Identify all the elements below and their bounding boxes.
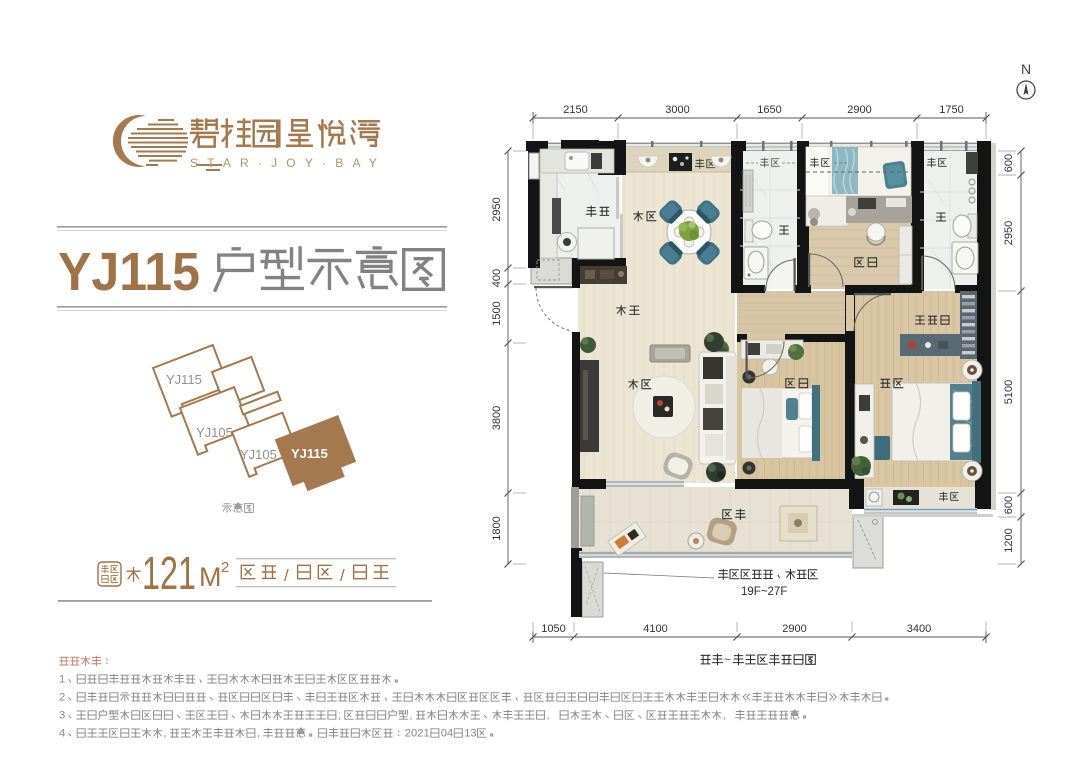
svg-text:/: / [284,566,289,585]
svg-text:400: 400 [491,269,503,287]
svg-text:04: 04 [441,728,453,740]
svg-text:YJ105: YJ105 [240,447,277,462]
svg-text:2900: 2900 [847,104,871,116]
svg-text:3400: 3400 [907,623,931,635]
svg-text:1500: 1500 [491,301,503,325]
svg-text:1800: 1800 [491,516,503,540]
svg-text:YJ115: YJ115 [58,242,200,302]
svg-text:YJ115: YJ115 [291,446,328,461]
svg-text:4100: 4100 [643,623,667,635]
svg-text:,: , [409,710,412,722]
svg-text:2: 2 [59,692,65,704]
svg-text:N: N [1021,61,1031,77]
svg-text:3800: 3800 [491,406,503,430]
svg-text:~: ~ [724,654,730,666]
svg-text:1200: 1200 [1003,528,1015,552]
svg-text:,: , [163,728,166,740]
svg-text:5100: 5100 [1003,380,1015,404]
svg-text:/: / [340,566,345,585]
svg-text:3: 3 [59,710,65,722]
svg-text:1750: 1750 [939,104,963,116]
svg-text:,: , [257,728,260,740]
svg-text:2150: 2150 [563,104,587,116]
svg-text:4: 4 [59,728,65,740]
svg-text:STAR·JOY·BAY: STAR·JOY·BAY [190,156,386,170]
svg-text:19F~27F: 19F~27F [741,586,787,598]
svg-text:600: 600 [1003,496,1015,514]
svg-text:,: , [723,710,726,722]
svg-text:M: M [199,562,222,592]
svg-text:1: 1 [59,674,65,686]
svg-text:13: 13 [464,728,476,740]
svg-text:2: 2 [221,559,229,576]
svg-text:121: 121 [142,547,196,599]
svg-text:YJ105: YJ105 [196,425,233,440]
svg-text:,: , [547,710,550,722]
svg-text:3000: 3000 [665,104,689,116]
svg-text:1050: 1050 [541,623,565,635]
svg-text:2900: 2900 [782,623,806,635]
svg-text:2950: 2950 [1003,221,1015,245]
svg-text:2950: 2950 [491,197,503,221]
svg-text:1650: 1650 [757,104,781,116]
svg-text:YJ115: YJ115 [166,372,202,387]
svg-text:600: 600 [1003,154,1015,172]
svg-text:2021: 2021 [405,728,430,740]
svg-text:;: ; [338,710,341,722]
